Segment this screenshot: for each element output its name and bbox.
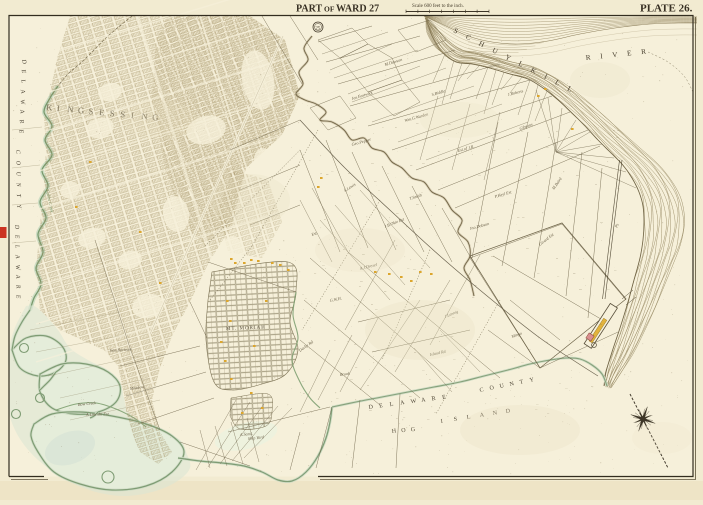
svg-text:A.Lincoln Est: A.Lincoln Est [85,411,110,417]
svg-text:PART OF WARD 27: PART OF WARD 27 [296,4,379,15]
svg-text:E: E [99,107,105,117]
svg-text:Scale 600 feet to the inch.: Scale 600 feet to the inch. [412,4,464,9]
svg-text:25: 25 [315,25,321,31]
svg-text:PLATE 26.: PLATE 26. [640,3,693,15]
svg-text:G: G [78,105,85,115]
svg-text:N: N [67,104,74,114]
